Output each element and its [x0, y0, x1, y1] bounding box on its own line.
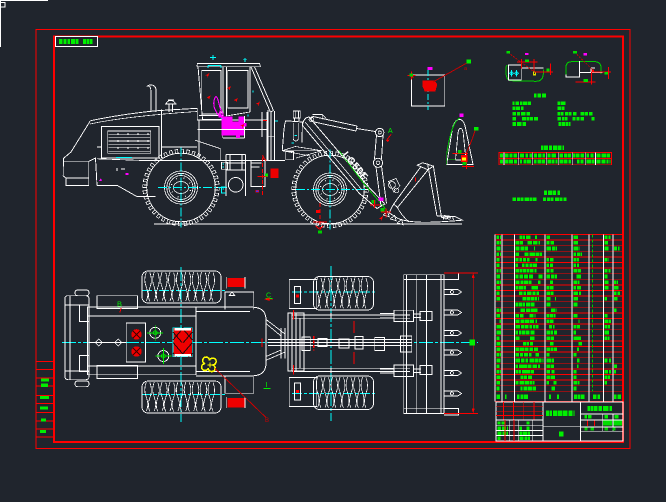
svg-text:B: B	[265, 418, 269, 424]
svg-text:B: B	[117, 300, 122, 309]
svg-text:A: A	[388, 128, 393, 135]
svg-text:I: I	[266, 380, 268, 389]
